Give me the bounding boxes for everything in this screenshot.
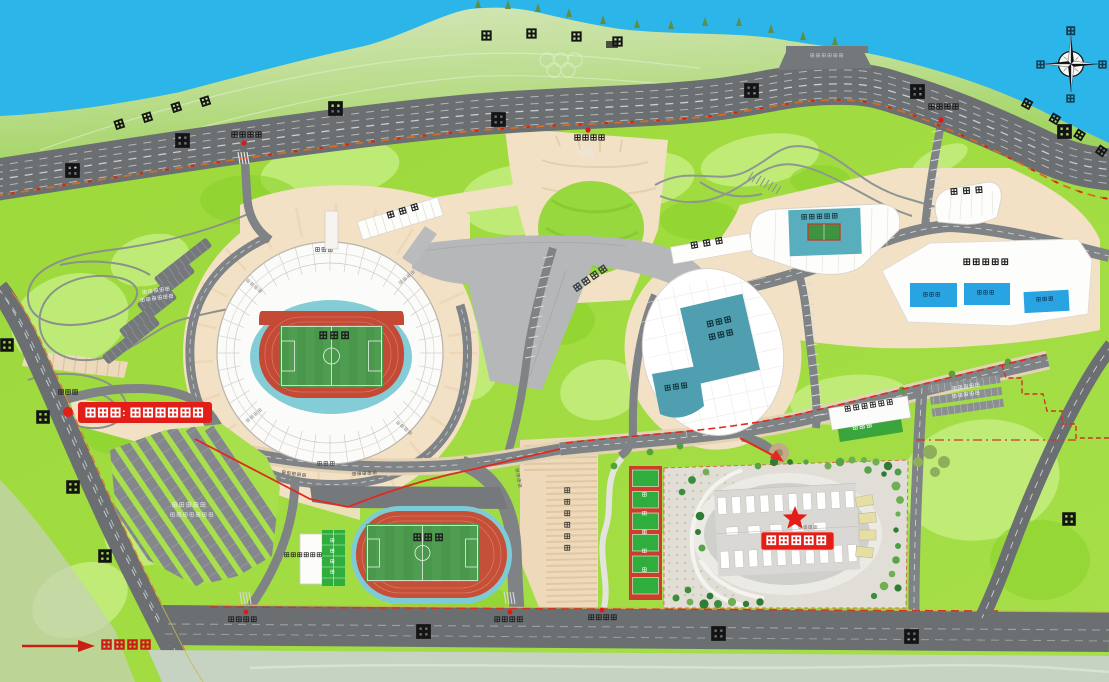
svg-text::: : <box>122 407 126 419</box>
